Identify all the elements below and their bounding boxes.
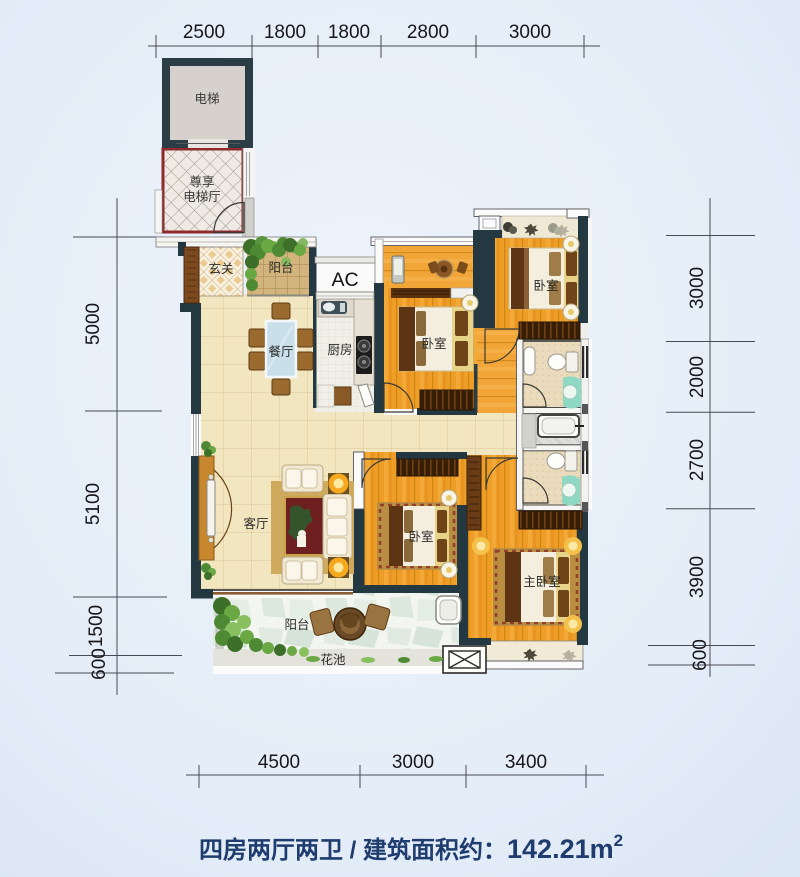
svg-text:AC: AC: [331, 269, 358, 291]
svg-text:电梯厅: 电梯厅: [183, 190, 221, 204]
svg-text:客厅: 客厅: [243, 516, 268, 531]
svg-text:餐厅: 餐厅: [268, 344, 293, 359]
svg-text:600: 600: [690, 639, 711, 671]
svg-text:5000: 5000: [83, 303, 104, 345]
svg-text:卧室: 卧室: [408, 529, 433, 544]
svg-text:玄关: 玄关: [208, 261, 233, 276]
svg-text:3900: 3900: [687, 556, 708, 598]
svg-text:2800: 2800: [407, 22, 449, 43]
svg-text:卧室: 卧室: [533, 278, 558, 293]
svg-text:2500: 2500: [183, 22, 225, 43]
svg-text:花池: 花池: [320, 652, 346, 667]
svg-text:厨房: 厨房: [327, 342, 352, 357]
svg-text:4500: 4500: [258, 752, 300, 773]
svg-text:1800: 1800: [328, 22, 370, 43]
svg-text:尊享: 尊享: [189, 174, 214, 189]
svg-text:电梯: 电梯: [194, 92, 219, 106]
svg-text:卧室: 卧室: [421, 336, 446, 351]
svg-text:1800: 1800: [264, 22, 306, 43]
svg-text:阳台: 阳台: [268, 260, 293, 275]
svg-text:3000: 3000: [392, 752, 434, 773]
svg-text:3400: 3400: [505, 752, 547, 773]
svg-text:5100: 5100: [83, 483, 104, 525]
svg-text:阳台: 阳台: [284, 617, 309, 632]
svg-text:3000: 3000: [509, 22, 551, 43]
svg-text:1500: 1500: [86, 605, 107, 647]
svg-text:2000: 2000: [687, 356, 708, 398]
svg-text:3000: 3000: [687, 267, 708, 309]
svg-text:主卧室: 主卧室: [523, 574, 561, 589]
svg-text:2700: 2700: [687, 439, 708, 481]
svg-text:600: 600: [89, 648, 110, 680]
